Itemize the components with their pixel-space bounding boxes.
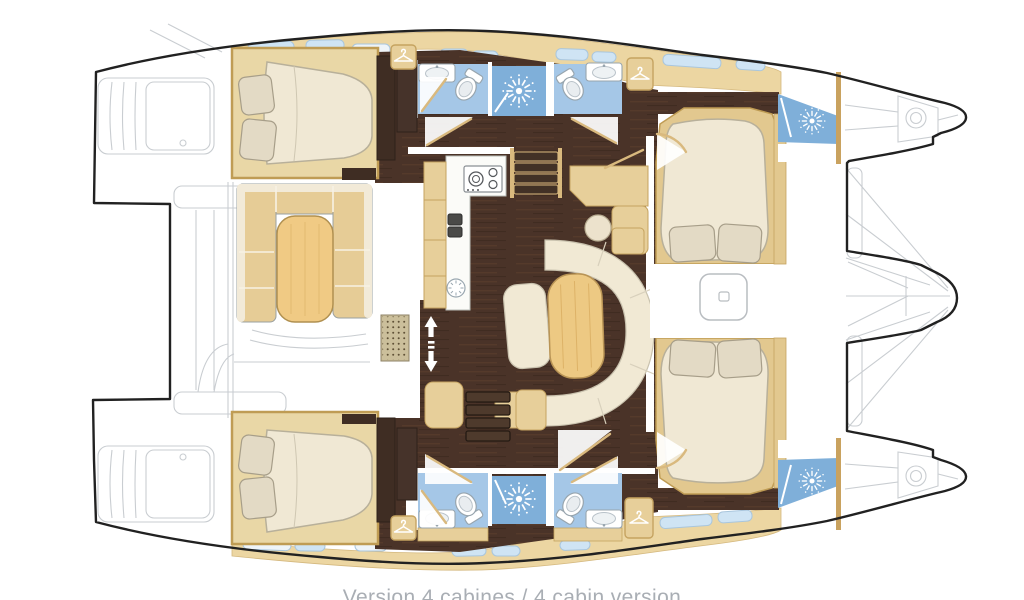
starboard-shower bbox=[492, 476, 546, 524]
hanging-locker bbox=[391, 516, 416, 540]
floor-grate bbox=[381, 315, 409, 361]
salon-floor-seams bbox=[234, 330, 370, 362]
starboard-transom bbox=[98, 446, 214, 522]
hanging-locker bbox=[627, 58, 653, 90]
round-hatch bbox=[447, 279, 465, 297]
port-forward-shower bbox=[778, 72, 841, 164]
galley-counter-right bbox=[570, 166, 648, 206]
dinette bbox=[237, 184, 372, 322]
settee-side-table bbox=[612, 228, 644, 254]
port-aft-cabin bbox=[232, 48, 417, 180]
galley-stool bbox=[585, 215, 611, 241]
port-transom bbox=[98, 78, 214, 154]
hanging-locker bbox=[625, 498, 653, 538]
galley-cabinets bbox=[424, 162, 446, 308]
settee-chaise bbox=[502, 282, 551, 369]
salon-table bbox=[547, 273, 605, 379]
floor-plan-canvas: Version 4 cabines / 4 cabin version bbox=[0, 0, 1024, 600]
escape-hatch bbox=[700, 274, 747, 320]
dinette-table bbox=[277, 216, 333, 322]
trampoline-lines bbox=[846, 168, 950, 430]
hanging-locker bbox=[391, 45, 416, 69]
port-shower bbox=[492, 66, 546, 116]
port-forward-bathroom bbox=[554, 63, 622, 114]
caption: Version 4 cabines / 4 cabin version bbox=[343, 586, 682, 600]
starboard-forward-shower bbox=[778, 438, 841, 530]
stove-burners-icon bbox=[464, 166, 502, 192]
galley-sinks bbox=[448, 214, 462, 237]
